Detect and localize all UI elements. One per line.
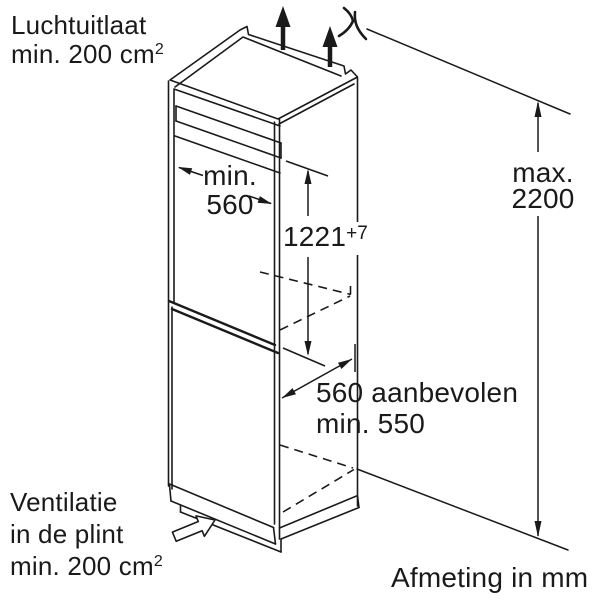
air-outlet-label: Luchtuitlaat min. 200 cm2: [11, 11, 164, 73]
niche-height-tolerance: +7: [346, 223, 368, 244]
arrowhead-up-icon: [305, 169, 312, 184]
depth-dimension-label: 560 aanbevolen min. 550: [316, 377, 518, 439]
air-outlet-line1: Luchtuitlaat: [11, 11, 164, 40]
max-height-line2: 2200: [493, 186, 593, 212]
superscript: 2: [154, 553, 163, 570]
max-height-dimension-label: max. 2200: [493, 160, 593, 212]
niche-height-value: 1221: [283, 221, 346, 252]
niche-width-dimension-label: min. 560: [180, 161, 280, 219]
plinth-vent-line2: in de plint: [10, 518, 163, 550]
arrowhead-down-icon: [535, 521, 542, 537]
plinth-vent-label: Ventilatie in de plint min. 200 cm2: [10, 486, 163, 587]
plinth-vent-line3: min. 200 cm2: [10, 550, 163, 587]
niche-width-line2: 560: [180, 190, 280, 219]
airflow-up-arrow-icon: [323, 26, 338, 67]
airflow-out-curved-icon: [339, 8, 366, 39]
dimension-niche-height: [283, 161, 328, 366]
cabinet-outline: [169, 27, 360, 553]
depth-line1: 560 aanbevolen: [316, 377, 518, 408]
air-outlet-line2: min. 200 cm2: [11, 40, 164, 73]
superscript: 2: [155, 41, 164, 58]
depth-line2: min. 550: [316, 408, 518, 439]
arrowhead-front-icon: [282, 388, 296, 398]
arrowhead-down-icon: [305, 341, 312, 356]
top-reference-line: [367, 29, 570, 114]
units-note: Afmeting in mm: [391, 563, 588, 592]
niche-floor-edge: [169, 301, 278, 353]
niche-height-dimension-label: 1221+7: [282, 222, 371, 255]
floor-reference-line: [357, 469, 568, 550]
plinth-airflow-arrow-icon: [172, 516, 215, 541]
arrowhead-up-icon: [535, 101, 542, 117]
niche-width-line1: min.: [180, 161, 280, 190]
arrowhead-back-icon: [338, 359, 352, 369]
installation-diagram: Luchtuitlaat min. 200 cm2 min. 560 1221+…: [0, 0, 600, 600]
plinth-vent-line1: Ventilatie: [10, 486, 163, 518]
